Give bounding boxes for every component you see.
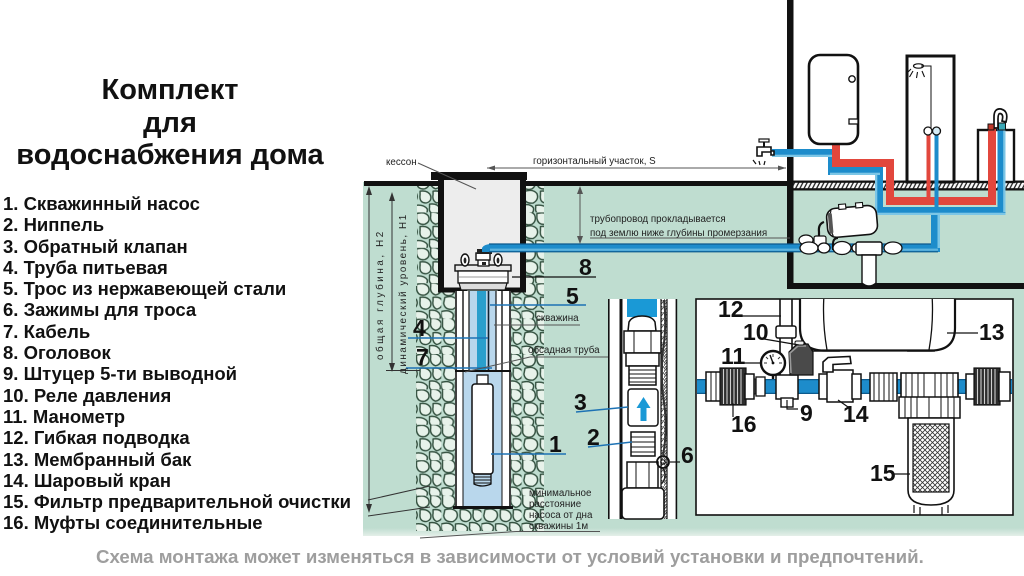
svg-text:расстояние: расстояние <box>529 499 582 510</box>
svg-text:13: 13 <box>979 319 1005 345</box>
svg-text:6: 6 <box>681 442 694 468</box>
svg-text:15: 15 <box>870 460 896 486</box>
svg-text:обсадная труба: обсадная труба <box>528 345 600 356</box>
svg-text:динамический уровень, Н1: динамический уровень, Н1 <box>398 213 409 374</box>
svg-text:1: 1 <box>549 431 562 457</box>
svg-text:16: 16 <box>731 411 757 437</box>
svg-text:скважина: скважина <box>536 313 579 324</box>
svg-text:под землю ниже глубины про: под землю ниже глубины промерзания <box>590 228 767 239</box>
svg-text:минимальное: минимальное <box>529 488 592 499</box>
svg-text:10: 10 <box>743 319 769 345</box>
svg-text:скважины 1м: скважины 1м <box>529 521 588 532</box>
svg-text:4: 4 <box>413 315 426 341</box>
svg-text:8: 8 <box>579 254 592 280</box>
svg-text:кессон: кессон <box>386 157 417 168</box>
svg-text:11: 11 <box>721 343 746 369</box>
svg-text:трубопровод прокладывается: трубопровод прокладывается <box>590 214 726 225</box>
svg-text:12: 12 <box>718 296 744 322</box>
svg-text:7: 7 <box>416 344 429 370</box>
svg-text:горизонтальный участок, S: горизонтальный участок, S <box>533 156 656 167</box>
svg-text:общая глубина, Н2: общая глубина, Н2 <box>375 229 386 360</box>
svg-text:насоса от дна: насоса от дна <box>529 510 593 521</box>
svg-text:9: 9 <box>800 400 813 426</box>
svg-text:14: 14 <box>843 401 869 427</box>
